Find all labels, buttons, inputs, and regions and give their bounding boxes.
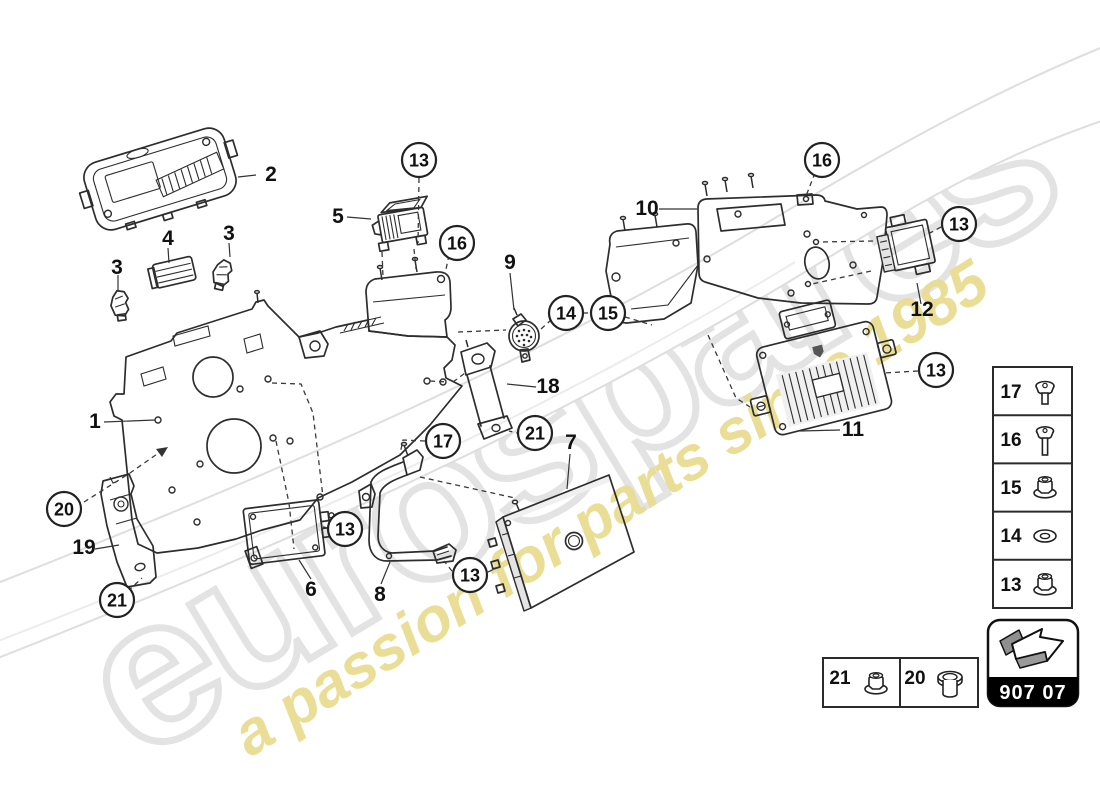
callout-21: 21 bbox=[100, 583, 134, 617]
group-code-text: 907 07 bbox=[999, 682, 1066, 704]
electrics-parts-diagram: eurospares a passion for parts since 198… bbox=[0, 0, 1100, 800]
part-label-4: 4 bbox=[162, 227, 174, 250]
callout-21: 21 bbox=[518, 416, 552, 450]
part-4-connector-drawing bbox=[147, 256, 196, 290]
part-label-19: 19 bbox=[72, 536, 95, 559]
svg-text:21: 21 bbox=[829, 668, 851, 689]
svg-text:13: 13 bbox=[335, 520, 355, 540]
part-5-module-drawing bbox=[369, 196, 435, 252]
part-group-code-box: 907 07 bbox=[988, 620, 1078, 706]
svg-text:13: 13 bbox=[460, 566, 480, 586]
callout-13: 13 bbox=[328, 512, 362, 546]
part-label-11: 11 bbox=[842, 418, 865, 441]
svg-text:16: 16 bbox=[447, 234, 467, 254]
callout-15: 15 bbox=[591, 296, 625, 330]
parts-diagram-page: eurospares a passion for parts since 198… bbox=[0, 0, 1100, 800]
part-label-12: 12 bbox=[910, 298, 933, 321]
svg-text:14: 14 bbox=[1000, 526, 1022, 547]
callout-13: 13 bbox=[453, 558, 487, 592]
part-label-2: 2 bbox=[265, 163, 277, 186]
svg-text:20: 20 bbox=[54, 500, 74, 520]
part-label-3: 3 bbox=[223, 222, 235, 245]
svg-text:16: 16 bbox=[812, 151, 832, 171]
callout-13: 13 bbox=[942, 207, 976, 241]
svg-text:15: 15 bbox=[598, 304, 618, 324]
part-label-7: 7 bbox=[565, 431, 577, 454]
callout-20: 20 bbox=[47, 492, 81, 526]
svg-text:13: 13 bbox=[1000, 575, 1021, 596]
callout-17: 17 bbox=[426, 424, 460, 458]
fastener-legend: 17 16 15 14 13 bbox=[993, 367, 1072, 608]
svg-text:14: 14 bbox=[556, 304, 576, 324]
callout-16: 16 bbox=[440, 226, 474, 260]
hardware-box: 21 20 bbox=[823, 658, 978, 707]
part-3-clip-drawing bbox=[210, 258, 234, 291]
dash-arrowhead bbox=[156, 447, 168, 457]
part-label-5: 5 bbox=[332, 205, 344, 228]
callout-16: 16 bbox=[805, 143, 839, 177]
part-label-10: 10 bbox=[635, 197, 658, 220]
part-label-1: 1 bbox=[89, 410, 101, 433]
part-3-clip-drawing bbox=[109, 289, 131, 321]
callout-14: 14 bbox=[549, 296, 583, 330]
svg-text:21: 21 bbox=[525, 424, 545, 444]
svg-text:16: 16 bbox=[1000, 430, 1021, 451]
svg-text:17: 17 bbox=[1000, 382, 1021, 403]
svg-text:15: 15 bbox=[1000, 478, 1022, 499]
washer-icon bbox=[1034, 530, 1056, 542]
part-label-9: 9 bbox=[504, 251, 516, 274]
svg-text:13: 13 bbox=[949, 215, 969, 235]
svg-text:17: 17 bbox=[433, 432, 453, 452]
part-label-3: 3 bbox=[111, 256, 123, 279]
part-label-18: 18 bbox=[536, 375, 560, 398]
svg-text:13: 13 bbox=[926, 361, 946, 381]
svg-text:21: 21 bbox=[107, 591, 127, 611]
part-label-6: 6 bbox=[305, 578, 317, 601]
part-label-8: 8 bbox=[374, 583, 386, 606]
callout-13: 13 bbox=[402, 143, 436, 177]
module-support-bracket-drawing bbox=[366, 258, 451, 338]
callout-13: 13 bbox=[919, 353, 953, 387]
svg-text:13: 13 bbox=[409, 151, 429, 171]
svg-text:20: 20 bbox=[904, 668, 925, 689]
